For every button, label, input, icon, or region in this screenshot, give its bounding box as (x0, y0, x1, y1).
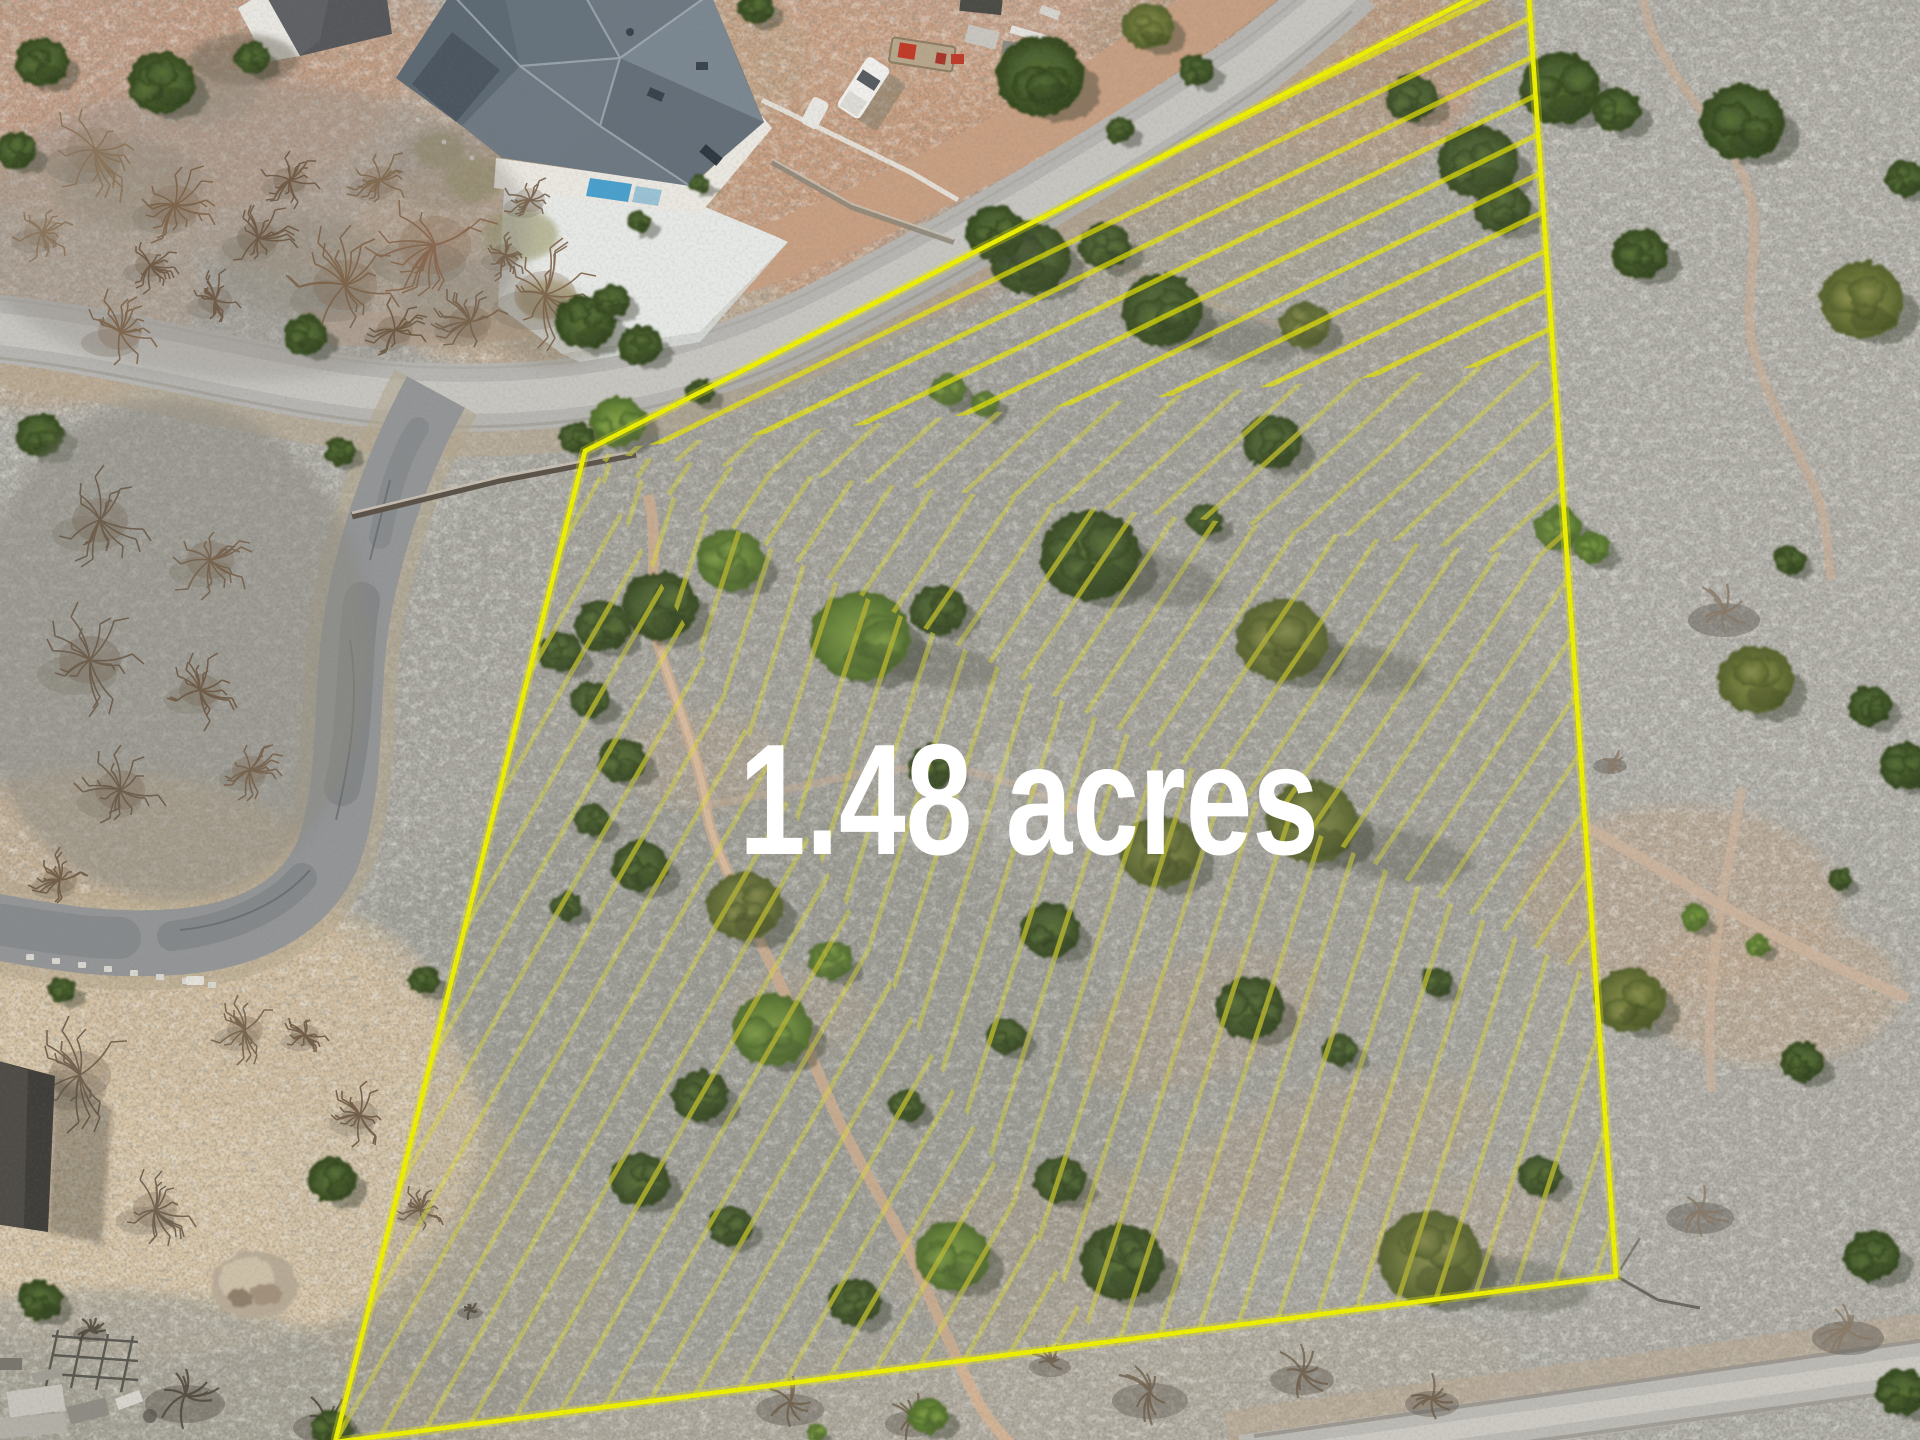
svg-text:1.48 acres: 1.48 acres (739, 712, 1319, 888)
